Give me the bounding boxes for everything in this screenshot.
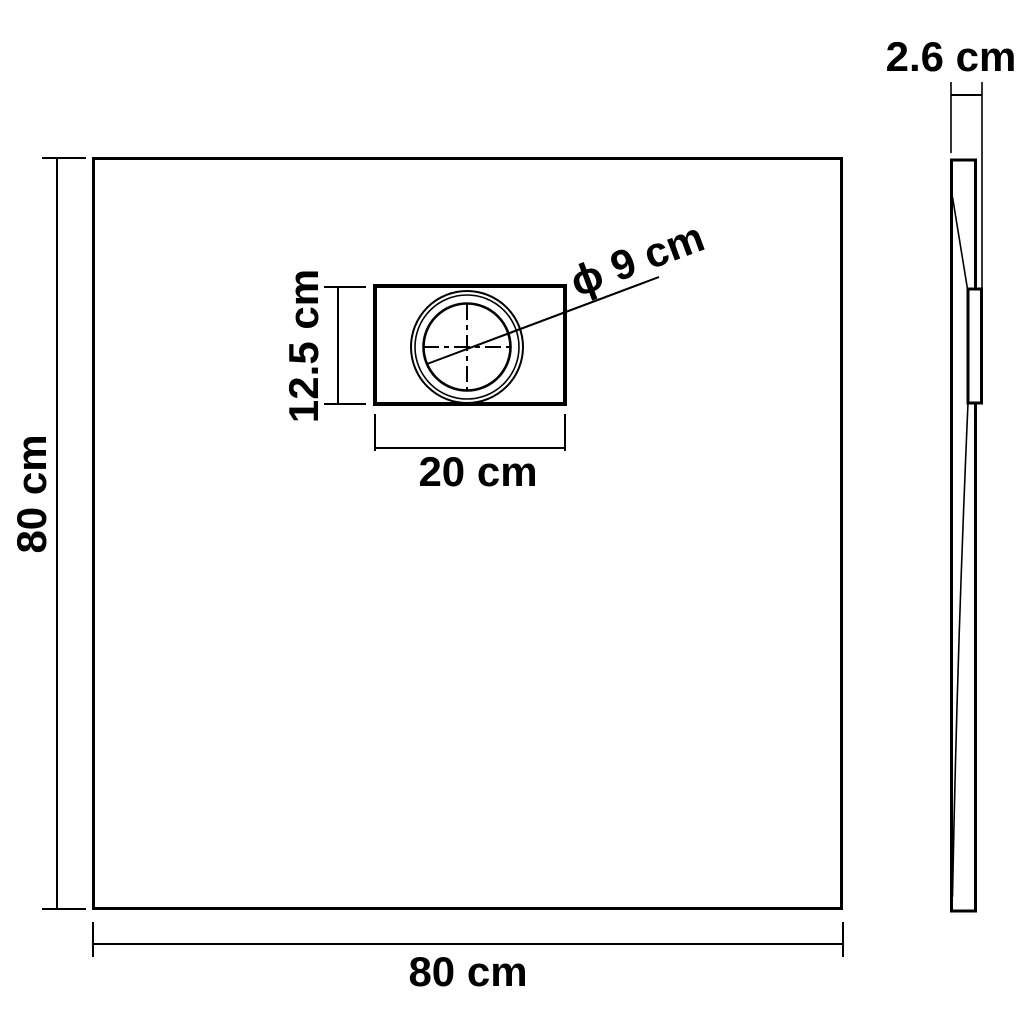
width-dimension: 80 cm <box>93 922 843 995</box>
thickness-dimension-label: 2.6 cm <box>886 33 1017 80</box>
height-dimension: 80 cm <box>8 158 86 909</box>
height-dimension-label: 80 cm <box>8 434 55 553</box>
side-view-slope-line-lower <box>953 403 969 897</box>
dimension-drawing-page: 80 cm 80 cm 12.5 cm 20 cm ϕ 9 cm <box>0 0 1024 1024</box>
drain-width-dimension-label: 20 cm <box>418 448 537 495</box>
side-view <box>950 159 982 912</box>
drain-width-dimension: 20 cm <box>375 414 565 495</box>
diameter-leader-line <box>427 277 659 364</box>
drain-height-dimension: 12.5 cm <box>280 269 366 423</box>
side-view-slope-line-upper <box>953 197 968 289</box>
width-dimension-label: 80 cm <box>408 948 527 995</box>
shower-tray-dimension-drawing: 80 cm 80 cm 12.5 cm 20 cm ϕ 9 cm <box>0 0 1024 1024</box>
plan-view <box>94 159 842 909</box>
plan-view-outline <box>94 159 842 909</box>
drain-height-dimension-label: 12.5 cm <box>280 269 327 423</box>
drain-diameter-dimension: ϕ 9 cm <box>564 213 711 306</box>
drain-diameter-label: ϕ 9 cm <box>564 213 711 306</box>
side-view-drain-bump <box>968 289 982 403</box>
